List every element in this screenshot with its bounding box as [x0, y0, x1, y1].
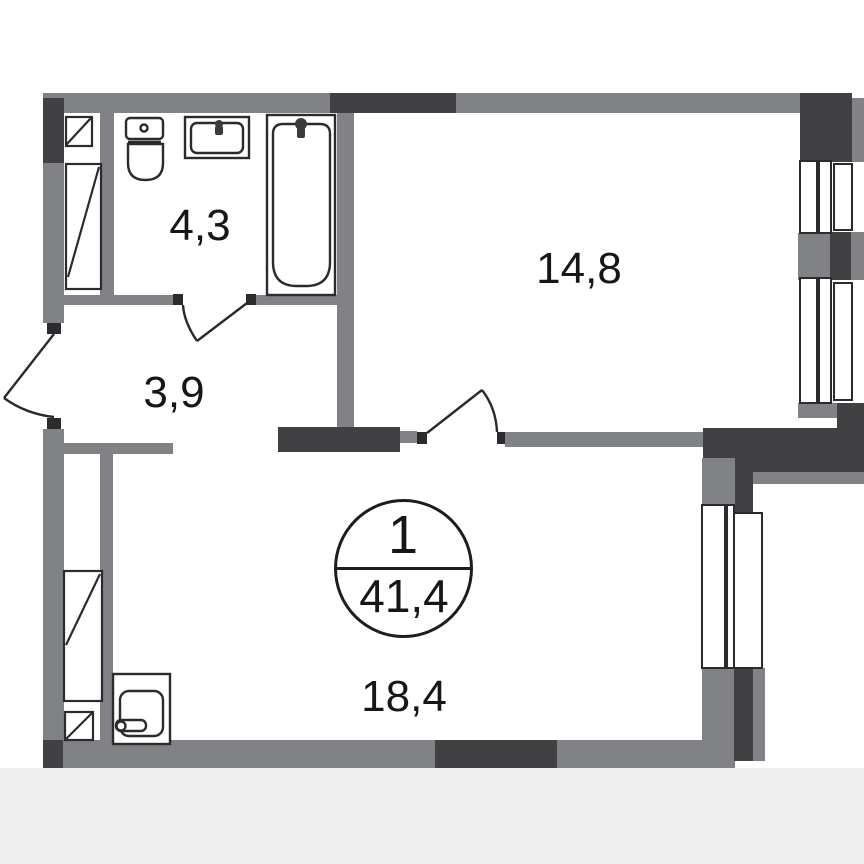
wall-kitchen-right-upper: [702, 458, 735, 507]
bathtub-basin: [273, 124, 330, 286]
window-living-room-2: [800, 278, 852, 403]
apartment-badge: 1 41,4: [336, 501, 472, 637]
bathroom-door-jamb-left: [173, 294, 183, 305]
wall-kitchen-right-dark-bottom: [734, 668, 753, 761]
kitchen-sink: [113, 674, 170, 744]
window-pane: [702, 505, 725, 668]
wall-corner-bottom-left-dark: [43, 740, 64, 768]
entrance-door-jamb-top: [47, 323, 61, 334]
wall-right-dark-top: [800, 93, 852, 162]
toilet-bowl: [128, 144, 163, 180]
vent-sash-bottom-small: [65, 712, 93, 740]
kitchen-sink-faucet-knob: [117, 722, 126, 731]
window-pane: [727, 505, 734, 668]
washbasin: [185, 117, 249, 158]
toilet-flush-button: [141, 125, 148, 132]
wall-kitchen-right-dark-top: [734, 455, 753, 515]
badge-total-area: 41,4: [359, 570, 449, 622]
label-living-room-area: 14,8: [536, 244, 622, 293]
window-kitchen: [702, 505, 762, 668]
label-bathroom-area: 4,3: [169, 201, 230, 250]
wall-kitchen-right-sliver: [753, 668, 765, 761]
wall-kitchen-right-lower: [702, 668, 735, 768]
window-sill: [734, 513, 762, 668]
wall-left-dark-block: [43, 98, 64, 163]
room-door-jamb-left: [417, 432, 427, 444]
wall-room-bottom: [505, 432, 703, 447]
vent-sash-top-tall: [66, 164, 101, 289]
wall-right-sliver-top: [852, 98, 864, 162]
window-living-room-1: [800, 161, 852, 233]
wall-right-bottom-gray: [798, 403, 837, 418]
label-hallway-area: 3,9: [143, 368, 204, 417]
bathtub-faucet-stem: [297, 128, 305, 138]
wall-mid-dark-bar: [278, 427, 400, 452]
label-kitchen-area: 18,4: [361, 672, 447, 721]
vent-sash-bottom-tall: [64, 571, 102, 701]
wall-top-dark-segment: [330, 93, 456, 113]
washbasin-faucet-stem: [215, 126, 223, 135]
wall-bottom-dark-segment: [435, 740, 557, 768]
window-pane: [819, 278, 831, 403]
window-pane: [800, 161, 817, 233]
floor-plan-page: 4,3 3,9 14,8 18,4 1 41,4: [0, 0, 864, 864]
toilet: [126, 118, 163, 180]
window-sill: [834, 283, 852, 400]
wall-left-upper: [43, 163, 64, 323]
window-sill: [834, 164, 852, 230]
wall-corner-right-gray: [753, 472, 864, 484]
wall-right-pier-dark: [830, 232, 851, 280]
wall-left-lower: [43, 429, 64, 743]
wall-hallway-right: [337, 113, 354, 427]
vent-sash-top-small: [66, 117, 92, 146]
wall-hallway-bottom-stub: [62, 443, 173, 454]
wall-right-bottom-dark: [837, 403, 864, 428]
wall-right-pier-sliver: [851, 232, 864, 280]
window-pane: [800, 278, 817, 403]
badge-rooms-count: 1: [388, 505, 418, 565]
footer-strip: [0, 768, 864, 864]
floor-plan-drawing: 4,3 3,9 14,8 18,4 1 41,4: [0, 0, 864, 864]
entrance-door-jamb-bottom: [47, 418, 61, 429]
bathtub: [267, 115, 335, 295]
wall-bathroom-bottom-left: [63, 295, 173, 305]
wall-mid-gray-stub: [400, 431, 417, 443]
wall-right-pier-gray: [798, 233, 830, 280]
room-door-jamb-right: [497, 432, 506, 444]
window-pane: [819, 161, 831, 233]
